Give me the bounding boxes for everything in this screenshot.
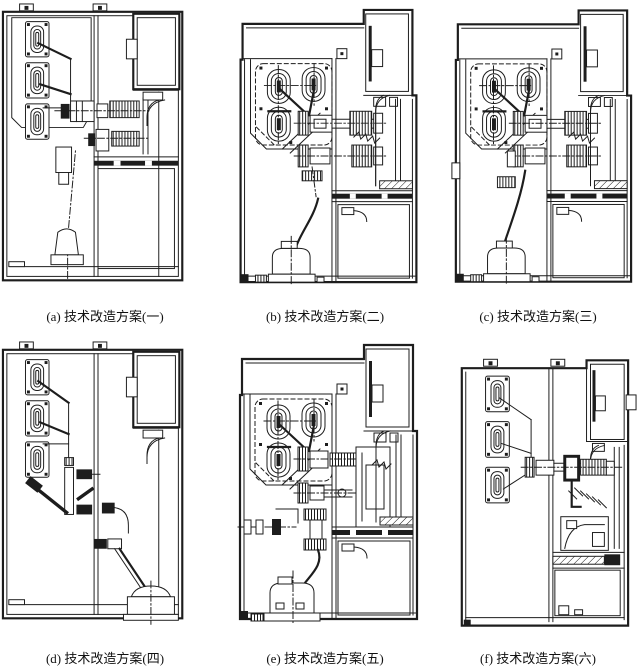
figure-grid: (a) 技术改造方案(一) (b) 技术改造方案(二) (c) 技术改造方案(三…	[0, 0, 640, 668]
cabinet-shell	[241, 10, 417, 282]
figure-panel-f	[442, 336, 640, 638]
switchgear-drawing-scheme-1	[0, 0, 196, 298]
caption-f: (f) 技术改造方案(六)	[436, 648, 640, 667]
figure-panel-c	[442, 2, 640, 300]
figure-panel-b	[226, 2, 426, 300]
caption-d: (d) 技术改造方案(四)	[0, 648, 210, 667]
switchgear-drawing-scheme-6	[442, 336, 640, 638]
caption-b: (b) 技术改造方案(二)	[220, 306, 430, 325]
caption-a: (a) 技术改造方案(一)	[0, 306, 210, 325]
figure-panel-e	[226, 336, 426, 638]
switchgear-drawing-scheme-4	[0, 336, 196, 638]
caption-c: (c) 技术改造方案(三)	[436, 306, 640, 325]
figure-panel-a	[0, 0, 196, 298]
caption-e: (e) 技术改造方案(五)	[220, 648, 430, 667]
switchgear-drawing-scheme-5	[226, 336, 426, 638]
switchgear-drawing-scheme-2	[226, 2, 426, 300]
figure-panel-d	[0, 336, 196, 638]
switchgear-drawing-scheme-3	[442, 2, 640, 300]
